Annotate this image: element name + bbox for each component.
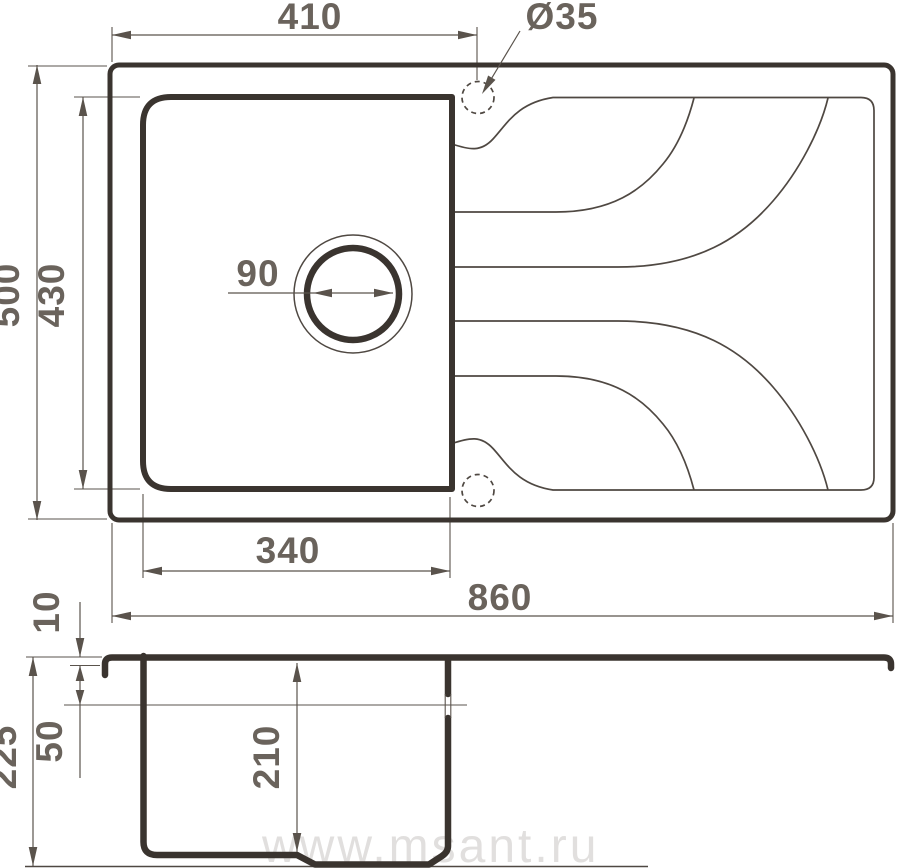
dim-label-500: 500: [0, 263, 27, 328]
arrowhead: [112, 31, 131, 40]
arrowhead: [143, 567, 162, 576]
dim-label-210: 210: [246, 725, 287, 790]
drain: [294, 235, 412, 353]
dimension-860: 860: [112, 577, 893, 620]
arrowhead: [29, 657, 38, 676]
dim-label-10: 10: [26, 590, 67, 633]
dim-label-430: 430: [31, 263, 72, 328]
arrowhead: [374, 289, 393, 298]
dim-label-410: 410: [278, 0, 343, 37]
drainboard-ribs: [455, 98, 828, 490]
dim-label-860: 860: [468, 577, 533, 618]
arrowhead: [76, 690, 85, 705]
drain-flange-circle: [294, 235, 412, 353]
dim-label-50: 50: [29, 719, 70, 762]
arrowhead: [874, 612, 893, 621]
arrowhead: [458, 31, 477, 40]
rib-line: [455, 376, 694, 490]
arrowhead: [313, 289, 332, 298]
sink-technical-drawing: 410 Ø35 500 430 90: [0, 0, 900, 868]
dimension-410: 410: [112, 0, 477, 39]
dimension-430: 430: [31, 97, 87, 489]
bowl-right-wall-hollow: [445, 694, 451, 718]
drainboard-outline: [452, 98, 874, 491]
dim-label-faucet-diameter: Ø35: [526, 0, 599, 37]
rib-line: [455, 321, 828, 490]
dim-label-90: 90: [236, 253, 279, 294]
extension-lines-top-view: [28, 27, 893, 623]
dim-label-225: 225: [0, 725, 24, 790]
arrowhead: [76, 638, 85, 657]
arrowhead: [29, 847, 38, 866]
dim-label-340: 340: [256, 530, 321, 571]
sink-outer-outline: [110, 65, 893, 520]
arrowhead: [431, 567, 450, 576]
dimension-340: 340: [143, 530, 450, 575]
arrowhead: [293, 663, 302, 682]
rib-line: [455, 98, 694, 212]
arrowhead: [112, 612, 131, 621]
arrowhead: [79, 470, 88, 489]
top-view: 410 Ø35 500 430 90: [0, 0, 893, 623]
drawing-canvas: 410 Ø35 500 430 90: [0, 0, 900, 868]
arrowhead: [33, 65, 42, 84]
rib-line: [455, 98, 828, 267]
arrowhead: [33, 501, 42, 520]
dimension-50: 50: [29, 666, 84, 779]
arrowhead: [79, 97, 88, 116]
rim-profile: [105, 658, 891, 676]
section-view: 225 10 50 210: [0, 590, 891, 866]
faucet-hole-bottom: [462, 475, 494, 507]
dimension-faucet-diameter: Ø35: [482, 0, 598, 94]
